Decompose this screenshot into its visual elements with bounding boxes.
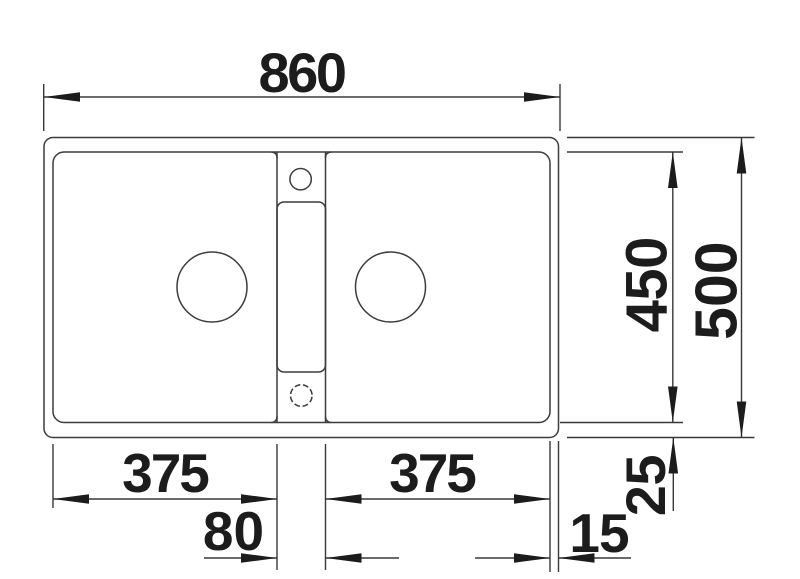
- svg-text:450: 450: [615, 237, 680, 332]
- svg-text:860: 860: [259, 41, 345, 104]
- svg-text:375: 375: [389, 442, 476, 504]
- svg-text:500: 500: [683, 241, 749, 339]
- svg-text:80: 80: [203, 500, 264, 562]
- svg-text:25: 25: [614, 455, 677, 516]
- svg-text:375: 375: [122, 442, 209, 504]
